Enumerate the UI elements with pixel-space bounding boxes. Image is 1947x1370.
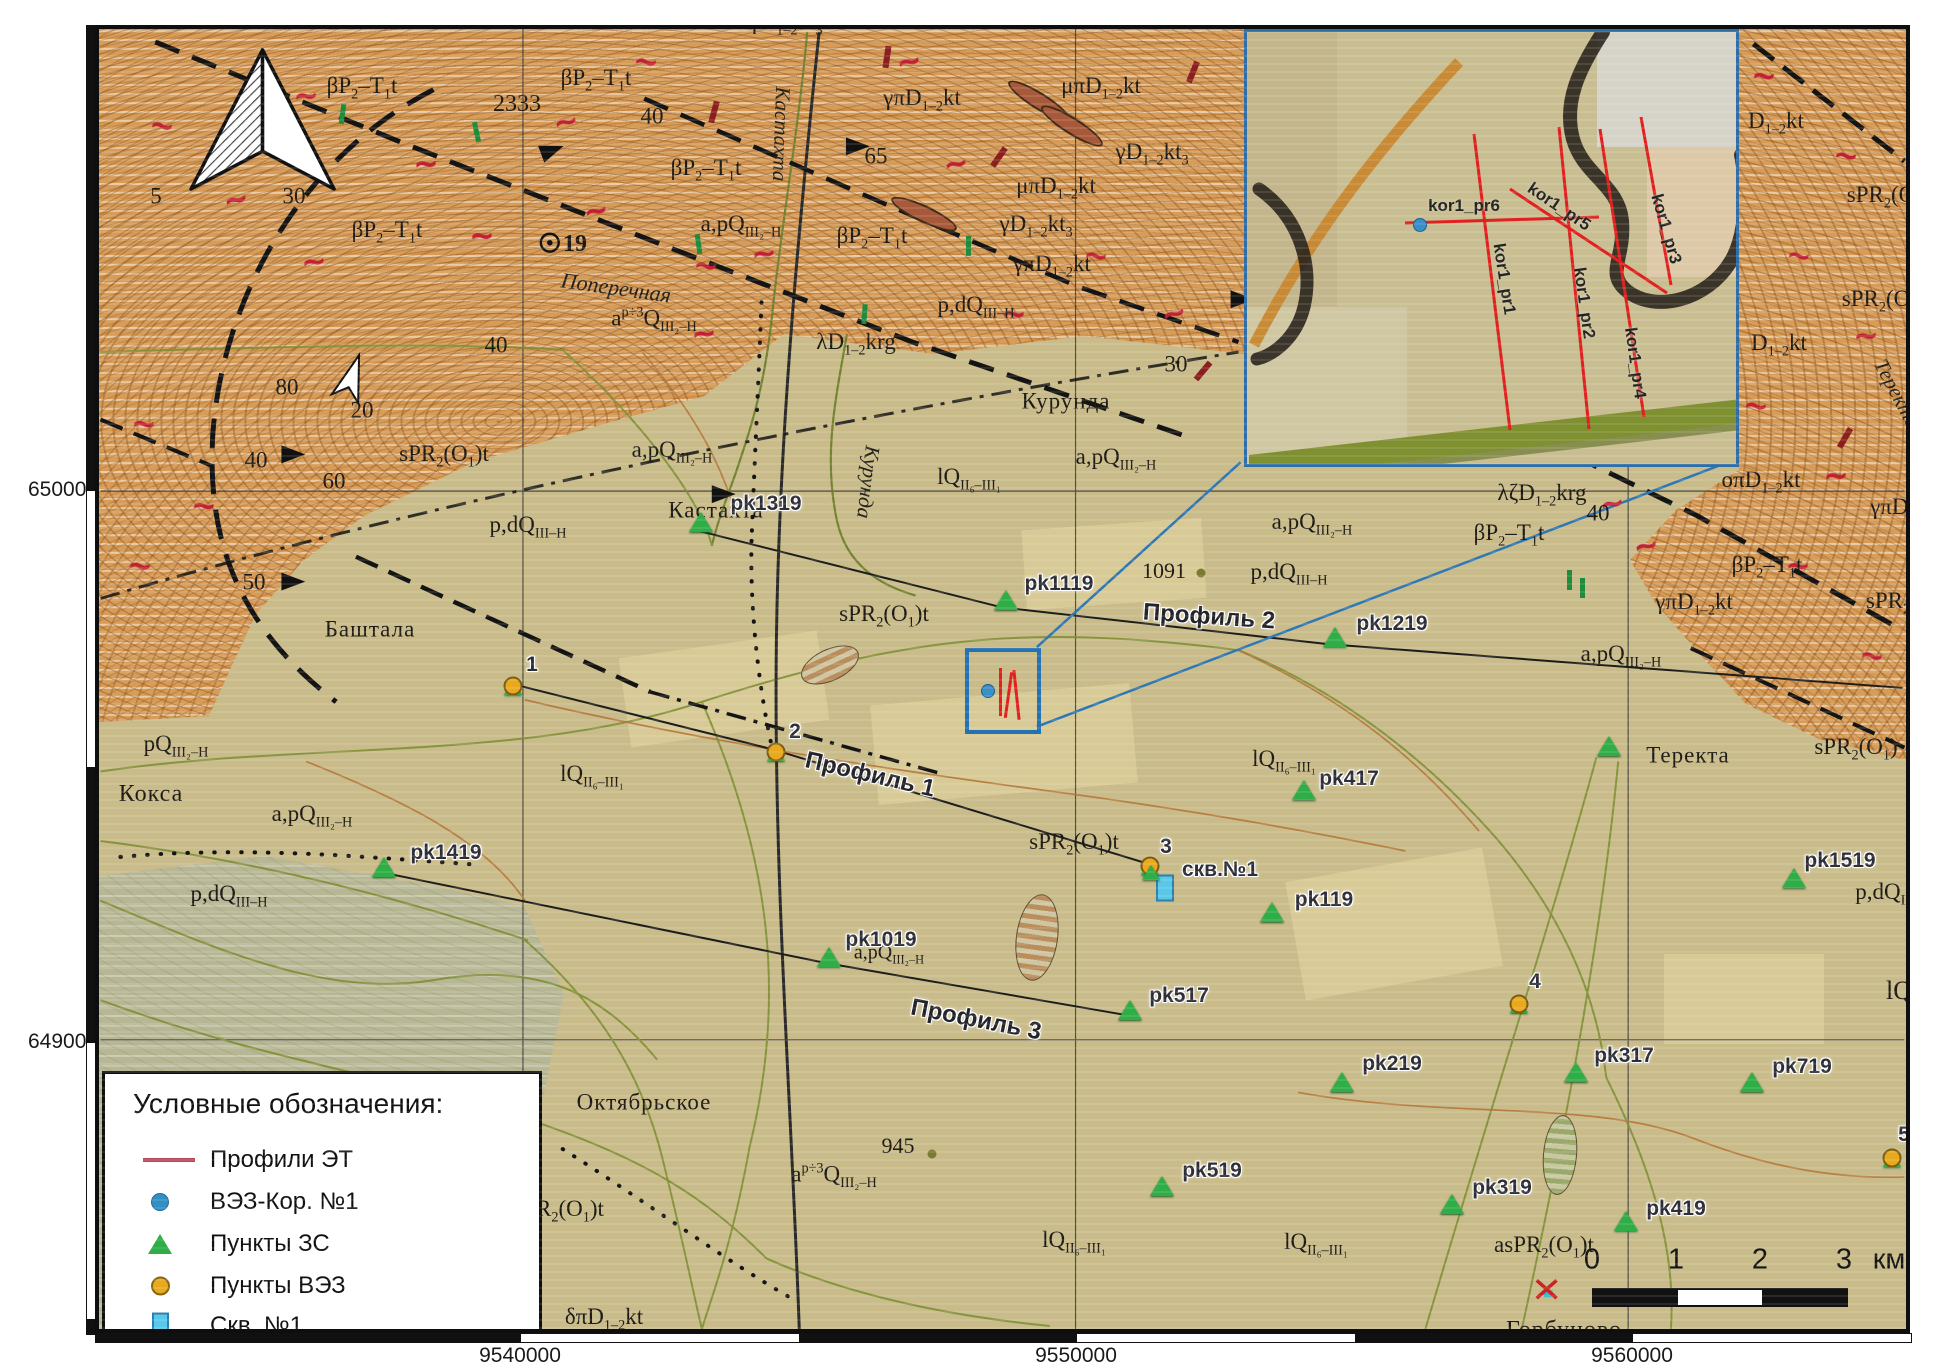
- x-axis-label-9560000: 9560000: [1591, 1344, 1673, 1368]
- zs-station-label: pk1019: [845, 928, 916, 952]
- vez-point-label: 1: [526, 653, 538, 677]
- zs-station-terekta: [1597, 736, 1621, 756]
- inset-line-label: kor1_pr2: [1569, 266, 1599, 340]
- zs-station-pk417: [1292, 780, 1316, 800]
- map-region[interactable]: ~~~~~~~~~~~~~~~~~~~~~~~~~~~~~~ βP2–T1tβP…: [95, 25, 1910, 1333]
- well-label: скв.№1: [1182, 858, 1258, 882]
- zs-station-pk719: [1740, 1072, 1764, 1092]
- zs-station-label: pk319: [1472, 1176, 1532, 1200]
- inset-line-label: kor1_pr1: [1489, 242, 1520, 316]
- zs-station-pk319: [1440, 1194, 1464, 1214]
- vez-point-label: 3: [1160, 835, 1172, 859]
- inset-line-label: kor1_pr4: [1620, 326, 1650, 400]
- scale-unit: км: [1873, 1244, 1906, 1277]
- zs-station-label: pk719: [1772, 1055, 1832, 1079]
- screenshot-page: 6500000 6490000 9540000 9550000 9560000: [0, 0, 1947, 1370]
- inset-line-label: kor1_pr3: [1646, 192, 1685, 267]
- zs-station-label: pk1519: [1804, 849, 1875, 873]
- scale-tick-0: 0: [1584, 1244, 1600, 1277]
- zs-station-pk219: [1330, 1072, 1354, 1092]
- zs-station-pk317: [1564, 1062, 1588, 1082]
- vez-point-label: 2: [789, 720, 801, 744]
- zs-station-label: pk219: [1362, 1052, 1422, 1076]
- scale-tick-3: 3: [1836, 1244, 1852, 1277]
- zs-swatch: [148, 1234, 172, 1254]
- zs-station-label: pk317: [1594, 1044, 1654, 1068]
- legend-title: Условные обозначения:: [133, 1088, 443, 1120]
- zs-station-pk1419: [372, 857, 396, 877]
- zs-station-pk1219: [1323, 627, 1347, 647]
- inset-line-label: kor1_pr5: [1524, 179, 1595, 236]
- vez-point-2: [767, 743, 786, 762]
- legend-panel: Условные обозначения: Профили ЭТ ВЭЗ-Кор…: [102, 1071, 542, 1333]
- vez-kor-swatch: [151, 1193, 169, 1211]
- zs-station-label: pk517: [1149, 984, 1209, 1008]
- profile-mark: [999, 668, 1002, 716]
- zs-station-pk517: [1118, 1000, 1142, 1020]
- legend-item-label: Скв. №1: [210, 1312, 303, 1333]
- profile-mark: [1004, 672, 1013, 718]
- zs-station-pk419: [1614, 1211, 1638, 1231]
- legend-item-label: Пункты ЗС: [210, 1230, 330, 1258]
- well-triangle: [1142, 865, 1160, 880]
- legend-item-label: ВЭЗ-Кор. №1: [210, 1188, 359, 1216]
- well-swatch: [152, 1313, 169, 1334]
- legend-item-label: Профили ЭТ: [210, 1146, 353, 1174]
- zs-station-pk1519: [1782, 868, 1806, 888]
- zs-station-label: pk519: [1182, 1159, 1242, 1183]
- zs-station-label: pk1119: [1025, 572, 1094, 596]
- zs-station-label: pk417: [1319, 767, 1379, 791]
- inset-labels-layer: kor1_pr1kor1_pr2kor1_pr3kor1_pr4kor1_pr5…: [1247, 32, 1736, 464]
- zs-station-label: pk1419: [410, 841, 481, 865]
- vez-point-5: [1883, 1149, 1902, 1168]
- vez-point-1: [504, 677, 523, 696]
- inset-detail-view: kor1_pr1kor1_pr2kor1_pr3kor1_pr4kor1_pr5…: [1244, 29, 1739, 467]
- scale-tick-2: 2: [1752, 1244, 1768, 1277]
- scale-tick-1: 1: [1668, 1244, 1684, 1277]
- profile-line-swatch: [143, 1158, 195, 1162]
- zs-station-label: pk1319: [730, 492, 801, 516]
- profile-mark: [1012, 670, 1020, 720]
- vez-swatch: [151, 1277, 170, 1296]
- zs-station-pk1319: [689, 512, 713, 532]
- x-axis-label-9540000: 9540000: [479, 1344, 561, 1368]
- zs-station-label: pk1219: [1356, 612, 1427, 636]
- inset-vez-kor-dot: [1413, 218, 1427, 232]
- inset-line-label: kor1_pr6: [1428, 196, 1500, 216]
- zs-station-pk119: [1260, 902, 1284, 922]
- zs-station-label: pk419: [1646, 1197, 1706, 1221]
- scale-bar: [1592, 1288, 1848, 1307]
- vez-point-label: 5: [1898, 1123, 1910, 1147]
- zs-station-pk519: [1150, 1176, 1174, 1196]
- zs-station-pk1119: [994, 590, 1018, 610]
- zs-station-label: pk119: [1295, 888, 1353, 912]
- vez-kor-point: [981, 684, 995, 698]
- bottom-frame-ticks: [95, 1333, 1912, 1343]
- zoom-source-box: [965, 648, 1041, 734]
- vez-point-label: 4: [1529, 970, 1541, 994]
- vez-point-4: [1510, 995, 1529, 1014]
- x-axis-label-9550000: 9550000: [1035, 1344, 1117, 1368]
- legend-item-label: Пункты ВЭЗ: [210, 1272, 346, 1300]
- zs-station-pk1019: [817, 947, 841, 967]
